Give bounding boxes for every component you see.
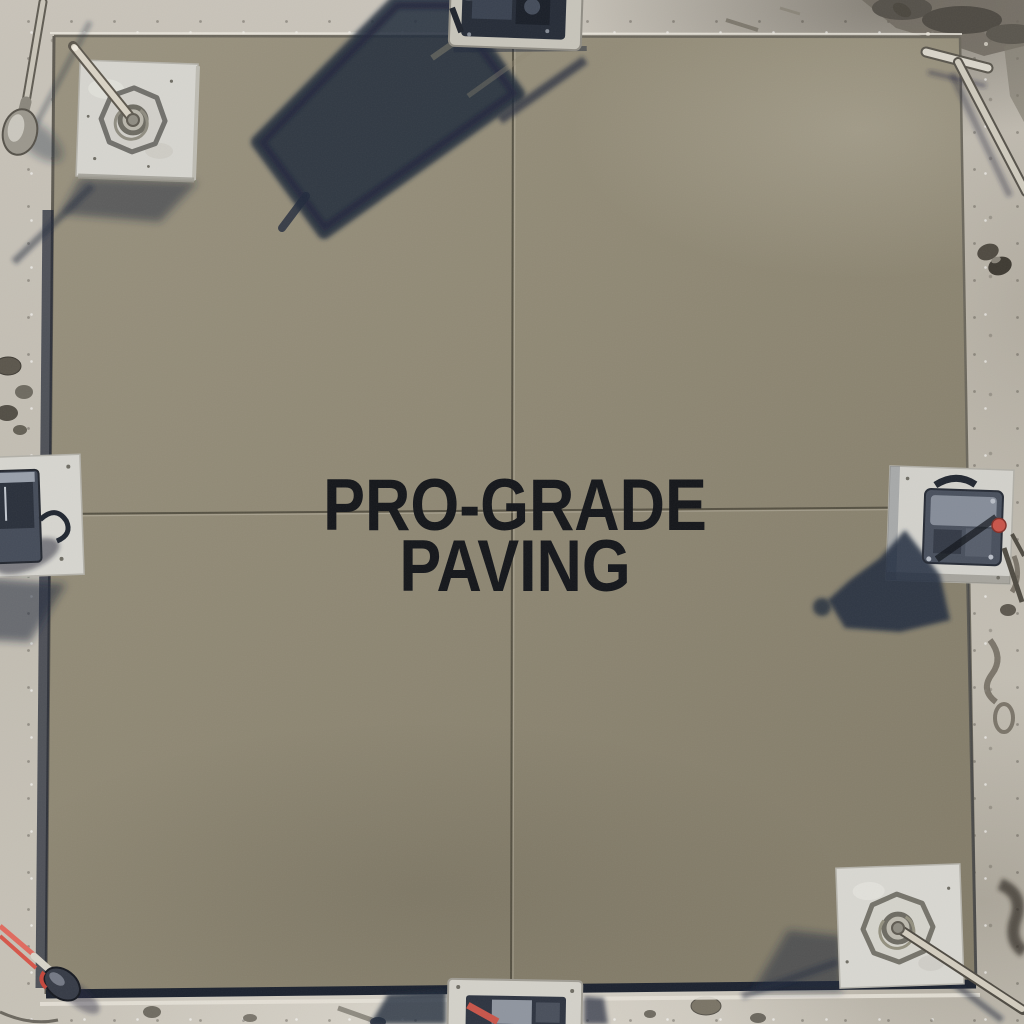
site-illustration: PRO-GRADE PAVING xyxy=(0,0,1024,1024)
construction-site-aerial-photo: PRO-GRADE PAVING xyxy=(0,0,1024,1024)
film-grain-overlay xyxy=(0,0,1024,1024)
